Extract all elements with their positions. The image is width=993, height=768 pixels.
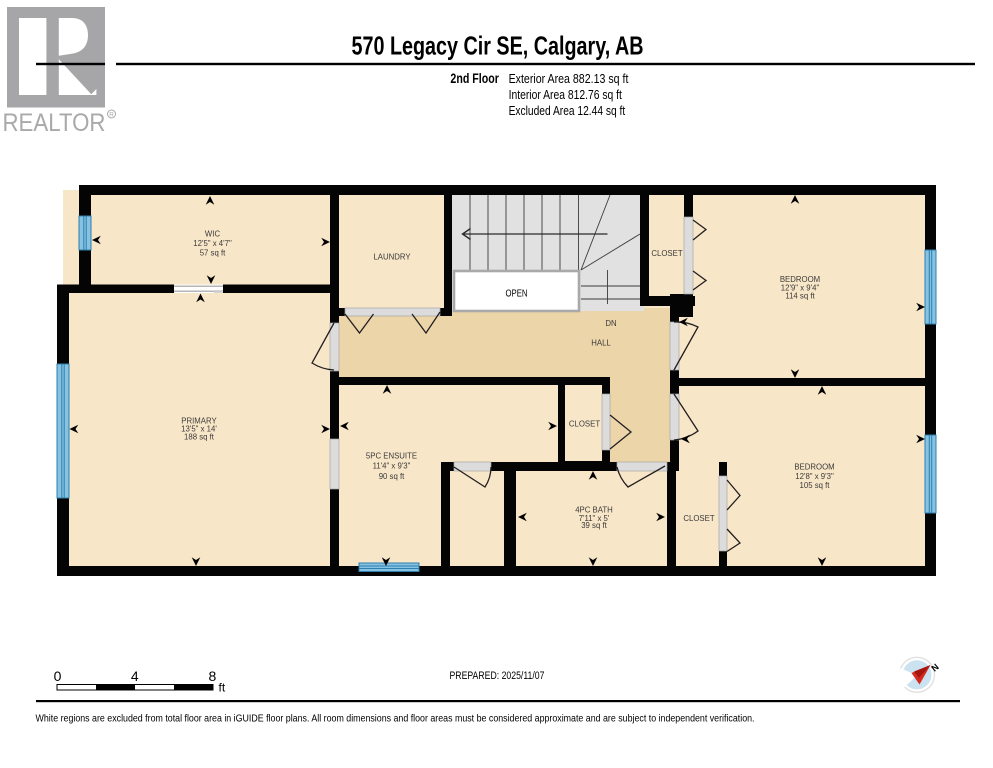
svg-text:105 sq ft: 105 sq ft [800,481,831,490]
svg-text:ft: ft [219,681,226,695]
svg-text:570 Legacy Cir SE, Calgary, AB: 570 Legacy Cir SE, Calgary, AB [352,31,644,61]
svg-text:Excluded Area 12.44 sq ft: Excluded Area 12.44 sq ft [509,103,626,118]
svg-text:2nd Floor: 2nd Floor [450,71,499,86]
svg-text:12'8" x 9'3": 12'8" x 9'3" [795,472,834,481]
svg-text:57 sq ft: 57 sq ft [200,249,226,258]
svg-text:CLOSET: CLOSET [683,514,714,523]
svg-text:LAUNDRY: LAUNDRY [373,253,411,262]
svg-text:Interior Area 812.76 sq ft: Interior Area 812.76 sq ft [509,87,623,102]
svg-text:OPEN: OPEN [506,289,528,300]
svg-text:BEDROOM: BEDROOM [794,463,834,472]
svg-text:4: 4 [131,668,139,684]
svg-text:HALL: HALL [591,339,611,348]
svg-text:Exterior Area 882.13 sq ft: Exterior Area 882.13 sq ft [509,71,629,86]
svg-text:12'5" x 4'7": 12'5" x 4'7" [193,239,232,248]
svg-text:114 sq ft: 114 sq ft [785,291,815,300]
svg-text:5PC ENSUITE: 5PC ENSUITE [366,452,417,461]
svg-text:39 sq ft: 39 sq ft [581,521,607,530]
svg-text:0: 0 [54,668,62,684]
svg-text:90 sq ft: 90 sq ft [379,472,405,481]
svg-text:8: 8 [209,668,217,684]
svg-text:REALTOR: REALTOR [3,109,106,137]
svg-text:DN: DN [605,319,616,328]
svg-text:White regions are excluded fro: White regions are excluded from total fl… [36,714,755,725]
svg-text:WIC: WIC [205,230,221,239]
svg-text:188 sq ft: 188 sq ft [184,433,215,442]
svg-text:PREPARED: 2025/11/07: PREPARED: 2025/11/07 [450,670,545,682]
svg-text:11'4" x 9'3": 11'4" x 9'3" [373,462,411,471]
svg-text:CLOSET: CLOSET [651,249,682,258]
svg-text:R: R [109,112,114,119]
svg-text:CLOSET: CLOSET [569,419,600,428]
